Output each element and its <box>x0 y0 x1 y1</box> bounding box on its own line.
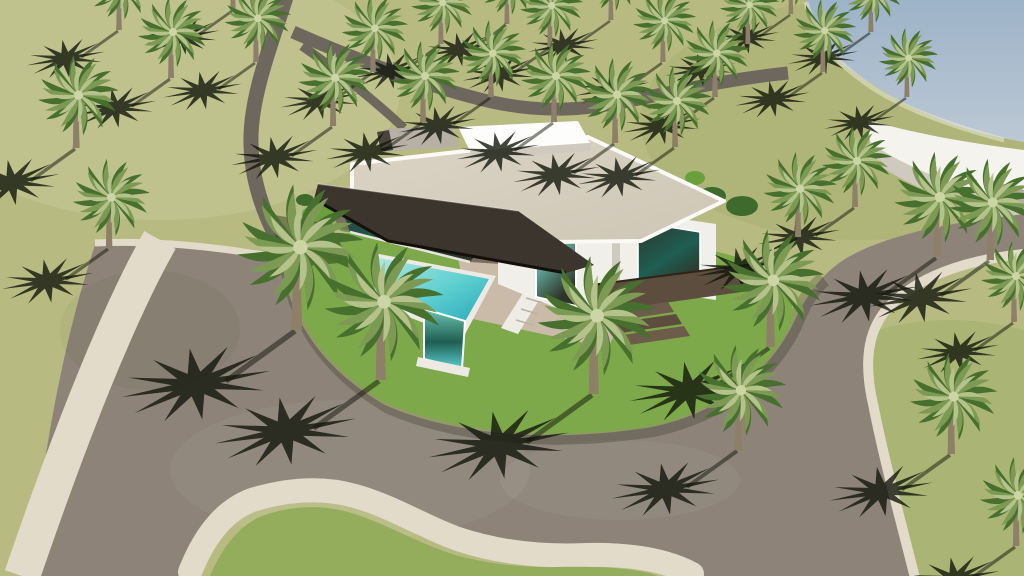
shrub <box>726 196 758 216</box>
scene-svg: Aerial 3D architectural rendering of a m… <box>0 0 1024 576</box>
road-highlight-2 <box>500 440 740 520</box>
render-viewport: Aerial 3D architectural rendering of a m… <box>0 0 1024 576</box>
